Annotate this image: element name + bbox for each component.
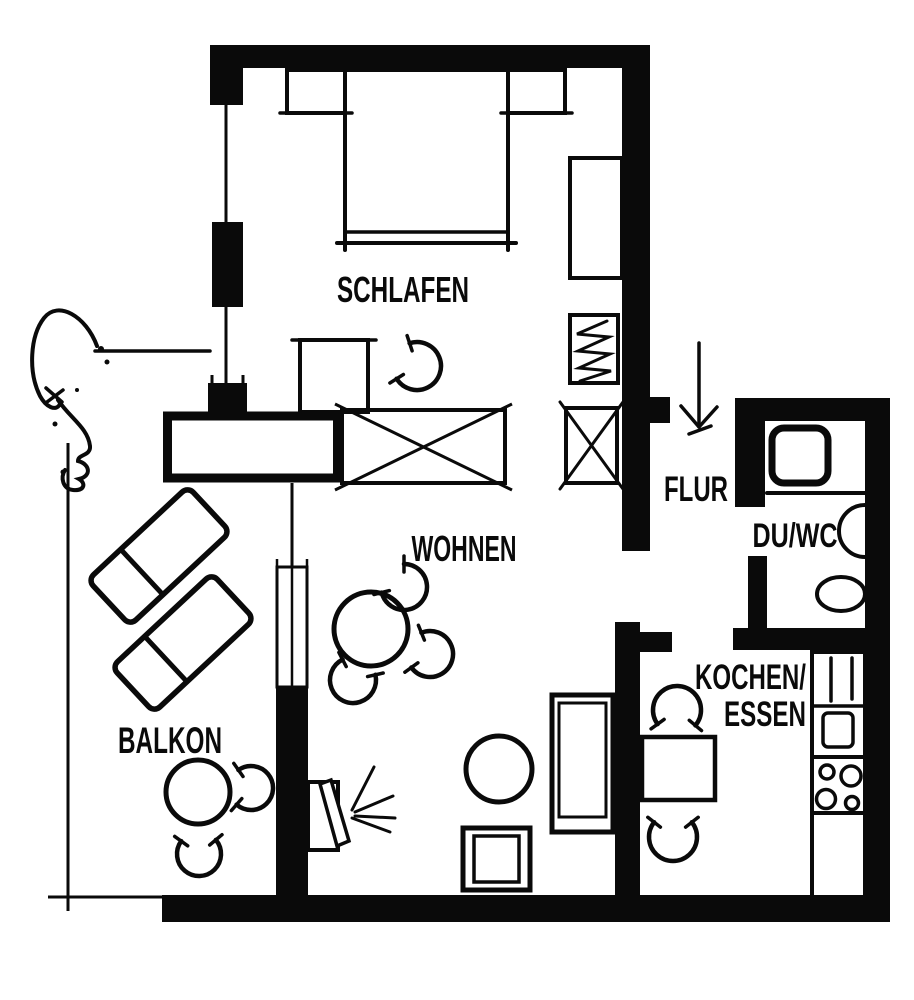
- label-schlafen: SCHLAFEN: [337, 269, 469, 310]
- double-bed: [337, 70, 516, 250]
- tv-ray: [352, 818, 390, 832]
- balcony-furniture: [88, 487, 273, 876]
- tv-with-rays: [308, 767, 395, 850]
- doodle-head-curve: [32, 310, 97, 407]
- chair-icon: [175, 835, 222, 876]
- label-balkon: BALKON: [118, 720, 222, 761]
- floor-plan: SCHLAFEN WOHNEN BALKON FLUR DU/WC KOCHEN…: [0, 0, 914, 1000]
- sofa: [552, 695, 613, 832]
- square-table: [463, 828, 530, 890]
- doodle-dot: [53, 422, 58, 427]
- doodle-dot: [98, 346, 104, 352]
- lounger: [88, 487, 230, 626]
- entrance-arrow-wing: [681, 406, 699, 427]
- tv-screen: [320, 780, 349, 846]
- burner: [817, 790, 836, 809]
- washbasin: [839, 505, 865, 557]
- dressing-table: [292, 340, 376, 412]
- sofa-inner: [559, 703, 606, 817]
- lounger-outline: [88, 487, 230, 626]
- label-wohnen: WOHNEN: [412, 528, 517, 569]
- label-duwc: DU/WC: [753, 517, 838, 555]
- doodle-dot: [75, 388, 79, 392]
- side-table: [466, 736, 532, 802]
- chair-icon: [405, 625, 453, 677]
- wall-kitchen-left: [615, 622, 640, 897]
- kitchen-table: [642, 737, 715, 800]
- chair-icon: [231, 763, 273, 810]
- window-lines: [48, 105, 307, 911]
- nightstand-left: [287, 70, 345, 113]
- lounger-outline: [112, 574, 254, 713]
- tv-ray: [352, 767, 374, 810]
- chair-icon: [651, 686, 701, 731]
- wall-left-pillar-small: [208, 383, 247, 412]
- burner: [841, 766, 861, 786]
- wc: [817, 577, 865, 611]
- dining-table: [334, 592, 408, 666]
- wall-kitchen-stub: [640, 632, 672, 652]
- burner: [846, 797, 859, 810]
- lounger: [112, 574, 254, 713]
- sofa-outline: [552, 695, 613, 832]
- living-furniture: [308, 556, 613, 890]
- label-kochen-line1: KOCHEN/: [695, 658, 806, 697]
- balcony-table: [166, 760, 230, 824]
- chair-icon: [648, 817, 698, 861]
- doodle-face-profile: [58, 400, 90, 490]
- wall-bottom: [162, 895, 890, 922]
- shower-tray: [772, 428, 828, 483]
- square-table-inner: [474, 836, 519, 882]
- wall-flur-stub: [648, 397, 670, 423]
- zigzag-lines: [577, 321, 611, 381]
- closet-x-right: [560, 402, 623, 489]
- label-kochen-line2: ESSEN: [724, 695, 806, 734]
- cooktop: [812, 757, 865, 813]
- counter: [812, 813, 865, 897]
- wall-top-left-pillar: [210, 45, 243, 105]
- entrance-arrow-wing: [699, 407, 717, 427]
- wall-duwc-bottom: [733, 628, 890, 650]
- entrance: [681, 343, 717, 434]
- wall-top: [210, 45, 650, 68]
- wall-outer-right: [865, 398, 890, 922]
- label-flur: FLUR: [664, 470, 728, 509]
- wall-balcony-partition: [276, 687, 308, 897]
- sideboard-partition: [168, 416, 338, 478]
- wardrobe: [570, 158, 622, 278]
- lounger-divider: [145, 636, 187, 681]
- nightstand-right: [508, 70, 565, 113]
- dressing-table-top: [300, 340, 368, 412]
- divider-furniture: [168, 404, 513, 490]
- chair-icon: [390, 336, 441, 390]
- burner: [820, 765, 834, 779]
- wall-duwc-left-lower: [748, 556, 767, 628]
- lounger-divider: [121, 549, 163, 594]
- tv-ray: [355, 816, 395, 818]
- wall-left-pillar-mid: [212, 222, 243, 307]
- tv-ray: [355, 796, 393, 812]
- closet-x-long: [335, 404, 512, 490]
- chair-icon: [330, 652, 383, 703]
- sink: [823, 713, 853, 747]
- wall-bedroom-right: [622, 45, 650, 551]
- wall-duwc-left-upper: [735, 421, 765, 507]
- shelf-with-zigzag: [570, 315, 618, 383]
- doodle-dot: [61, 470, 66, 475]
- kitchen-tall-unit: [812, 652, 865, 757]
- doodle-dot: [105, 360, 110, 365]
